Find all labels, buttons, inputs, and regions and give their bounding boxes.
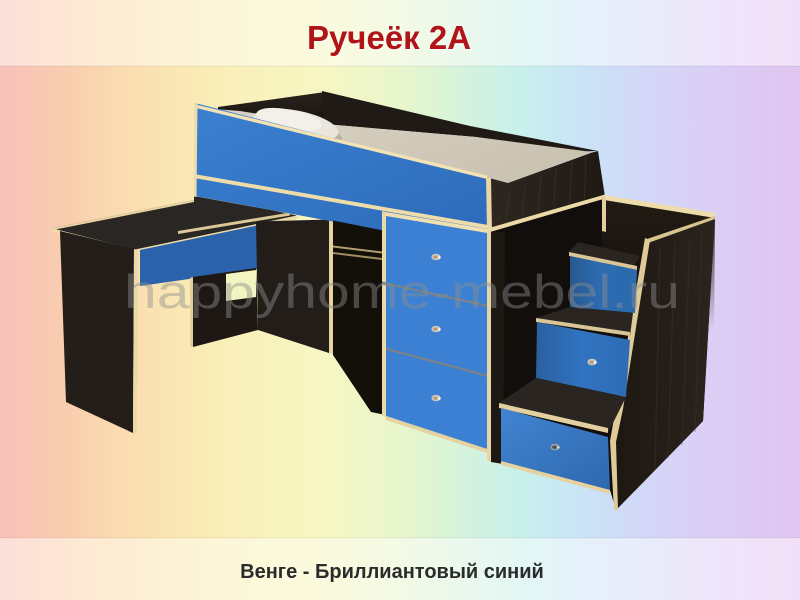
svg-text:happyhome-mebel.ru: happyhome-mebel.ru [124,265,680,318]
svg-text:Ручеёк 2А: Ручеёк 2А [307,19,471,56]
svg-text:Венге - Бриллиантовый синий: Венге - Бриллиантовый синий [240,561,544,583]
